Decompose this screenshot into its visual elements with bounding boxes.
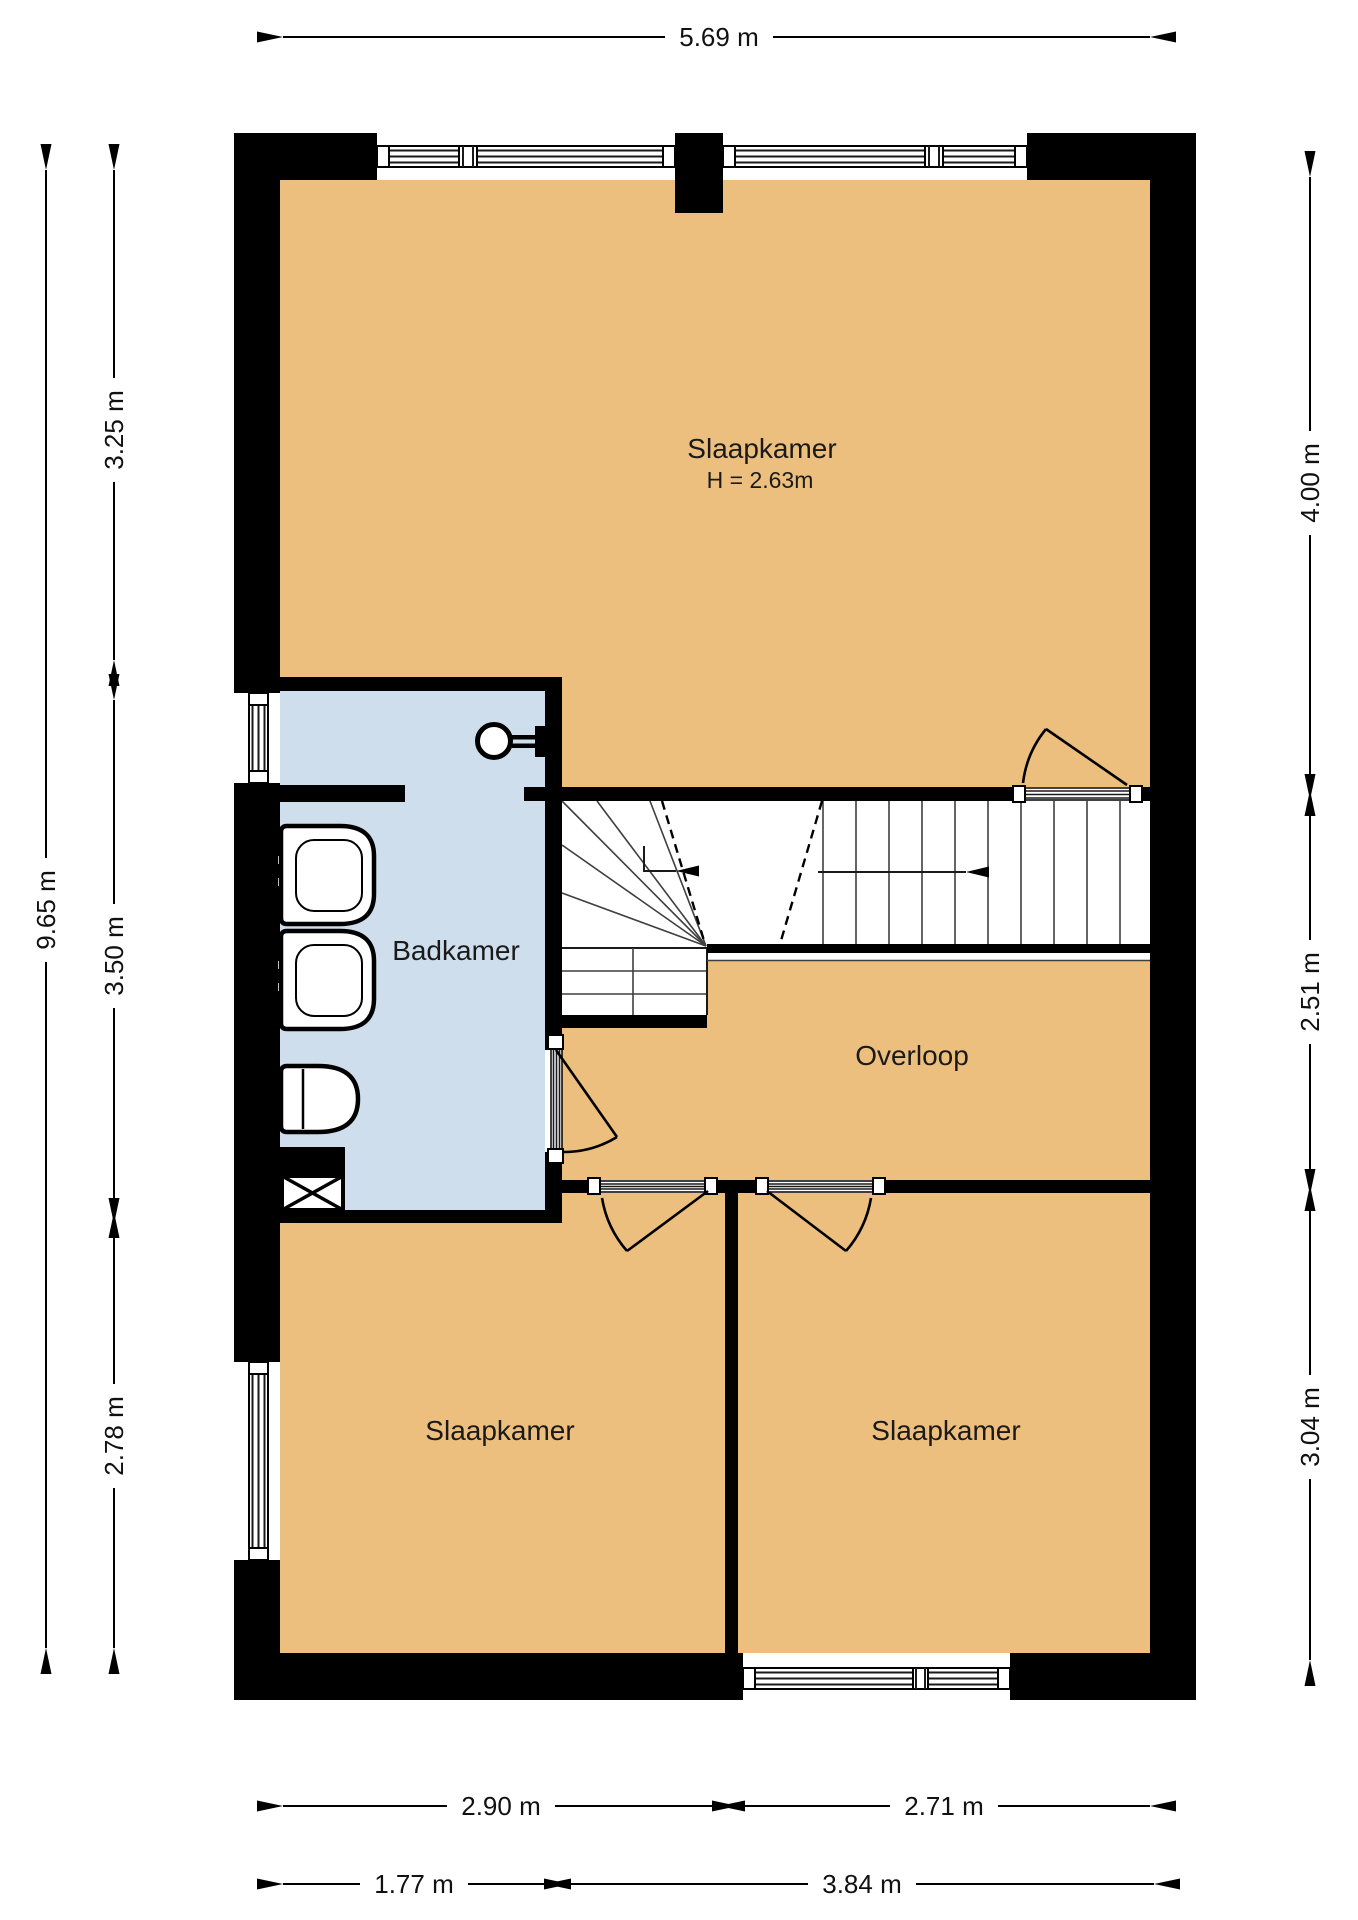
window-top-right (723, 146, 1027, 167)
svg-text:2.51 m: 2.51 m (1295, 952, 1325, 1032)
duct-shaft-icon (282, 1176, 343, 1210)
room-note-ceiling-height: H = 2.63m (707, 467, 814, 493)
dimension-right-bottom: 3.04 m (1292, 1195, 1328, 1660)
svg-text:2.71 m: 2.71 m (904, 1791, 984, 1821)
wall-bedroom-bathroom (280, 677, 562, 691)
wall-left-upper (234, 180, 280, 693)
svg-text:3.84 m: 3.84 m (822, 1869, 902, 1899)
dimension-right-middle: 2.51 m (1292, 800, 1328, 1185)
room-label-bedroom-bottom-right: Slaapkamer (871, 1415, 1020, 1446)
svg-text:2.90 m: 2.90 m (461, 1791, 541, 1821)
stairwell-winder-area (562, 801, 707, 1015)
wall-top-left (234, 133, 377, 180)
toilet-icon (281, 1066, 358, 1132)
dimension-left-bottom: 2.78 m (96, 1224, 132, 1648)
svg-text:3.04 m: 3.04 m (1295, 1387, 1325, 1467)
wall-bottom-right (1010, 1653, 1196, 1700)
wall-stairbox-bottom (545, 1015, 707, 1028)
svg-text:3.25 m: 3.25 m (99, 390, 129, 470)
svg-text:1.77 m: 1.77 m (374, 1869, 454, 1899)
dimension-bottom-bathroom: 1.77 m (283, 1868, 545, 1900)
svg-text:2.78 m: 2.78 m (99, 1396, 129, 1476)
dimension-bottom-room-left: 2.90 m (283, 1790, 719, 1822)
dimension-right-top: 4.00 m (1292, 177, 1328, 790)
window-left-bathroom (249, 693, 268, 783)
wall-left-lower (234, 1560, 280, 1653)
wall-top-pier (675, 133, 723, 213)
stair-landing-edge (707, 944, 1150, 953)
window-mullion (925, 146, 943, 167)
svg-text:5.69 m: 5.69 m (679, 22, 759, 52)
dimension-left-middle: 3.50 m (96, 700, 132, 1212)
wall-bedrooms-divider (725, 1193, 738, 1653)
wall-bottom-left (234, 1653, 743, 1700)
floorplan-drawing: Slaapkamer H = 2.63m Badkamer Overloop S… (0, 0, 1358, 1920)
room-label-landing: Overloop (855, 1040, 969, 1071)
dimension-top-width: 5.69 m (283, 21, 1150, 53)
room-label-bathroom: Badkamer (392, 935, 520, 966)
svg-text:4.00 m: 4.00 m (1295, 443, 1325, 523)
dimension-bottom-room-right: 2.71 m (738, 1790, 1150, 1822)
svg-text:9.65 m: 9.65 m (31, 870, 61, 950)
wall-bathroom-stub (280, 785, 405, 802)
sink-icon (277, 931, 374, 1029)
window-left-bedroom (249, 1362, 268, 1560)
sink-icon (277, 826, 374, 924)
window-top-left (377, 146, 675, 167)
wall-right (1150, 133, 1196, 1700)
wall-landing-bottom-3 (873, 1180, 1150, 1193)
dimension-left-total: 9.65 m (28, 170, 64, 1648)
dimension-bottom-landing: 3.84 m (570, 1868, 1154, 1900)
wall-duct-stub (234, 1147, 345, 1176)
wall-bathroom-stairs-upper (545, 677, 562, 1050)
room-label-bedroom-top: Slaapkamer (687, 433, 836, 464)
svg-text:3.50 m: 3.50 m (99, 916, 129, 996)
window-mullion (459, 146, 477, 167)
room-label-bedroom-bottom-left: Slaapkamer (425, 1415, 574, 1446)
wall-left-middle (234, 783, 280, 1362)
window-bottom-bedroom (743, 1668, 1010, 1689)
dimension-left-top: 3.25 m (96, 170, 132, 660)
floorplan-page: Slaapkamer H = 2.63m Badkamer Overloop S… (0, 0, 1358, 1920)
wall-stairwell-top-left (524, 787, 1023, 801)
